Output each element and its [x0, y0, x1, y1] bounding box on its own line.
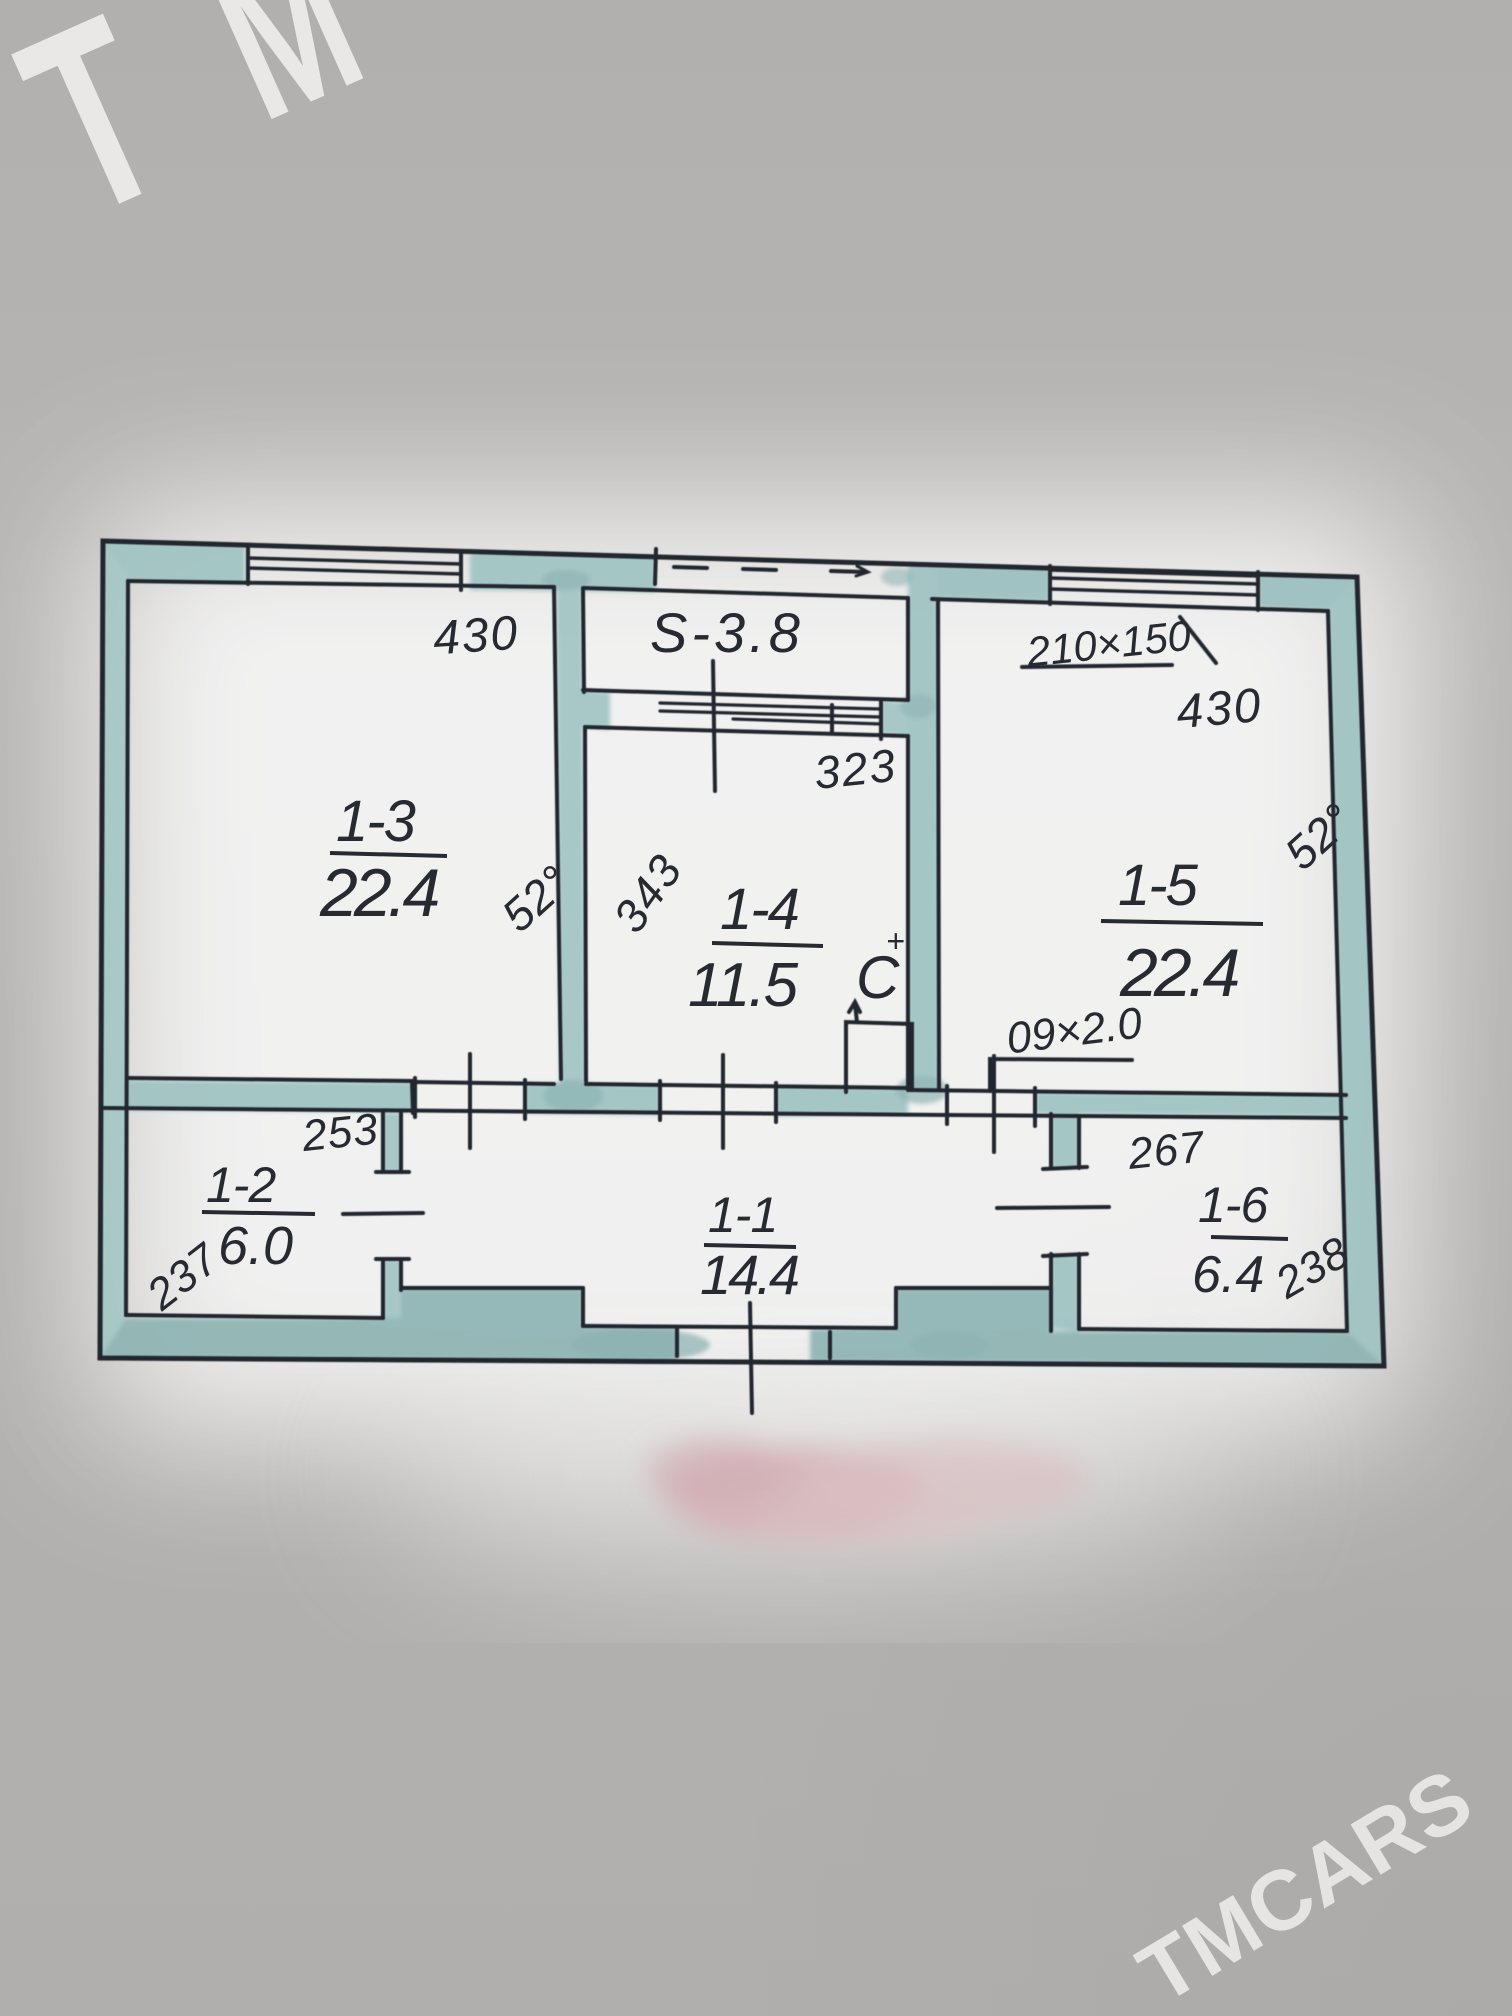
- svg-text:+: +: [886, 923, 905, 959]
- svg-text:253: 253: [299, 1104, 381, 1161]
- svg-text:1-4: 1-4: [720, 877, 799, 942]
- svg-text:1-1: 1-1: [708, 1187, 777, 1243]
- svg-text:1-2: 1-2: [206, 1157, 276, 1213]
- svg-text:430: 430: [1174, 679, 1264, 739]
- svg-text:1-3: 1-3: [336, 789, 416, 854]
- svg-text:14.4: 14.4: [700, 1243, 799, 1306]
- svg-text:11.5: 11.5: [688, 951, 799, 1020]
- svg-text:430: 430: [431, 607, 521, 666]
- svg-text:6.0: 6.0: [218, 1216, 293, 1276]
- svg-text:22.4: 22.4: [319, 855, 439, 931]
- svg-text:323: 323: [812, 739, 900, 799]
- svg-text:267: 267: [1125, 1122, 1208, 1179]
- svg-text:1-5: 1-5: [1118, 853, 1199, 918]
- svg-text:1-6: 1-6: [1198, 1177, 1268, 1233]
- svg-text:S-3.8: S-3.8: [650, 601, 804, 664]
- svg-text:6.4: 6.4: [1192, 1246, 1264, 1304]
